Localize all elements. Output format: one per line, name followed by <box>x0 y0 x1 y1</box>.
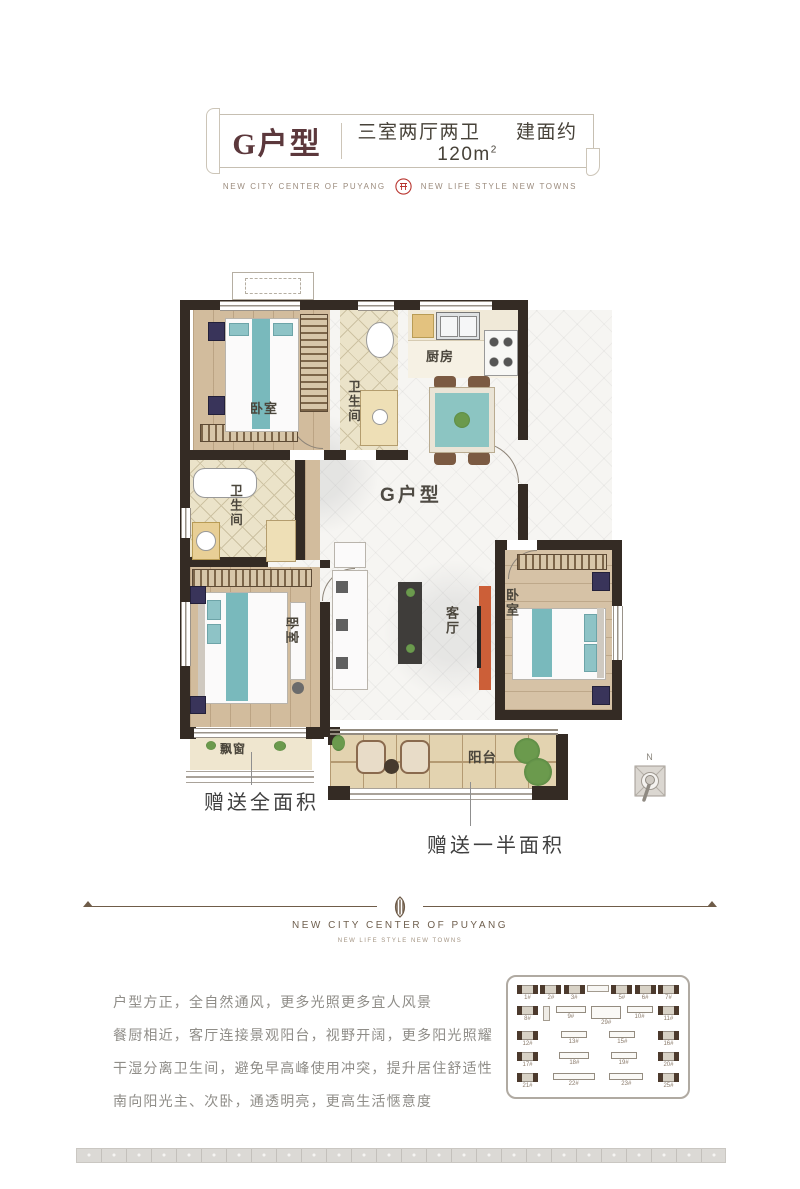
shower <box>360 390 398 446</box>
pillow <box>207 600 221 620</box>
wall <box>306 727 324 739</box>
floor-plan: 卧室 卫生间 厨房 卫生间 卧室 客厅 卧室 飘窗 阳台 G户型 <box>180 272 622 832</box>
door-gap <box>507 540 537 550</box>
building-footprint <box>611 1052 637 1059</box>
building: 25# <box>658 1073 679 1089</box>
building-footprint <box>517 1031 538 1040</box>
bed-runner <box>532 609 552 677</box>
site-plan-map: 1# 2# 3# 5# 6# 7# 8# 9# 29# 10# 11# 12# … <box>506 975 690 1099</box>
building-label: 16# <box>663 1041 673 1047</box>
building: 3# <box>564 985 585 1001</box>
ac-unit-outline <box>245 278 301 294</box>
cushion <box>336 581 348 593</box>
building-label: 17# <box>522 1062 532 1068</box>
dining-chair <box>468 452 490 465</box>
title-banner: G户型 三室两厅两卫 建面约120m2 <box>212 114 594 168</box>
unit-type-center-label: G户型 <box>380 480 442 507</box>
building: 20# <box>658 1052 679 1068</box>
bay-window-opening <box>194 728 306 738</box>
door-gap <box>290 450 324 460</box>
nightstand <box>190 696 206 714</box>
compass-icon <box>630 762 670 804</box>
building-footprint <box>658 1031 679 1040</box>
wall <box>518 484 528 542</box>
brand-line: NEW CITY CENTER OF PUYANG NEW LIFE STYLE… <box>0 178 800 195</box>
balcony-window-sill <box>350 788 532 800</box>
sink-basin <box>440 316 458 337</box>
balcony-plant <box>332 735 345 751</box>
sofa <box>332 570 368 690</box>
building-label: 29# <box>601 1020 611 1026</box>
balcony-slider-line <box>330 733 558 735</box>
building: 12# <box>517 1031 538 1047</box>
stool <box>292 682 304 694</box>
shelf-unit <box>398 582 422 664</box>
unit-name-title: G户型 <box>213 119 341 163</box>
compass-north-label: N <box>628 752 672 762</box>
building-label: 9# <box>567 1014 574 1020</box>
building-label: 25# <box>663 1083 673 1089</box>
gate-footprint <box>587 985 609 992</box>
kitchen-sink <box>436 312 480 340</box>
pillow <box>584 614 597 642</box>
building: 5# <box>611 985 632 1001</box>
unit-spec-text: 三室两厅两卫 建面约120m2 <box>342 117 593 166</box>
building-footprint <box>553 1073 595 1080</box>
room-label-kitchen: 厨房 <box>426 346 454 365</box>
section-divider: NEW CITY CENTER OF PUYANG NEW LIFE STYLE… <box>85 896 715 958</box>
building: 1# <box>517 985 538 1001</box>
pillow <box>207 624 221 644</box>
window <box>181 508 191 538</box>
divider-emblem-icon <box>387 896 413 918</box>
dining-chair <box>434 452 456 465</box>
divider-title: NEW CITY CENTER OF PUYANG <box>85 920 715 931</box>
building: 19# <box>611 1052 637 1066</box>
building-label: 22# <box>569 1081 579 1087</box>
building-label: 5# <box>618 995 625 1001</box>
table-plant <box>454 412 470 428</box>
shower <box>266 520 296 562</box>
building: 17# <box>517 1052 538 1068</box>
sink-basin <box>459 316 477 337</box>
building-label: 1# <box>524 995 531 1001</box>
building-label: 11# <box>664 1016 674 1022</box>
window <box>181 602 191 666</box>
building-footprint <box>591 1006 621 1019</box>
building: 9# <box>556 1006 586 1020</box>
headboard <box>198 592 205 702</box>
nightstand <box>190 586 206 604</box>
room-label-balcony: 阳台 <box>468 746 497 766</box>
building-label: 20# <box>663 1062 673 1068</box>
wall <box>320 602 330 737</box>
building: 18# <box>559 1052 589 1066</box>
description-line: 南向阳光主、次卧，通透明亮，更高生活惬意度 <box>113 1085 473 1118</box>
building-label: 7# <box>665 995 672 1001</box>
building-label: 23# <box>621 1081 631 1087</box>
room-label-bedroom-right: 卧室 <box>502 588 521 618</box>
wardrobe <box>517 554 607 570</box>
leader-line <box>470 782 471 826</box>
balcony-chair <box>356 740 386 774</box>
divider-line <box>91 906 377 907</box>
building-footprint <box>627 1006 653 1013</box>
wall <box>612 550 622 606</box>
description-line: 干湿分离卫生间，避免早高峰使用冲突，提升居住舒适性 <box>113 1052 473 1085</box>
room-label-bath-left: 卫生间 <box>226 484 245 528</box>
divider-end-triangle <box>707 901 717 907</box>
wall <box>320 560 330 568</box>
bottom-frieze-border <box>76 1148 726 1163</box>
site-plan-row: 21# 22# 23# 25# <box>517 1073 679 1089</box>
structure-footprint <box>543 1006 550 1021</box>
building-footprint <box>517 1006 538 1015</box>
building: 8# <box>517 1006 538 1022</box>
wall <box>495 710 622 720</box>
building-footprint <box>517 1073 538 1082</box>
cushion <box>336 619 348 631</box>
pillow <box>584 644 597 672</box>
building-footprint <box>556 1006 586 1013</box>
building: 10# <box>627 1006 653 1020</box>
armchair <box>334 542 366 568</box>
wall <box>518 310 528 440</box>
wall <box>495 550 505 710</box>
banner-scroll-curl-right <box>586 148 600 176</box>
site-plan-row: 8# 9# 29# 10# 11# <box>517 1006 679 1026</box>
divider-subtitle: NEW LIFE STYLE NEW TOWNS <box>85 938 715 944</box>
building: 7# <box>658 985 679 1001</box>
wall <box>295 460 305 560</box>
gift-full-area-label: 赠送全面积 <box>204 786 319 815</box>
corridor-floor <box>305 460 320 560</box>
bay-plant <box>206 741 216 750</box>
building-label: 18# <box>569 1060 579 1066</box>
building-footprint <box>540 985 561 994</box>
brand-seal-icon <box>395 178 412 195</box>
building-label: 8# <box>524 1016 531 1022</box>
pillow <box>229 323 249 336</box>
utility-structure <box>543 1006 550 1021</box>
wall <box>532 786 556 800</box>
pillow <box>273 323 293 336</box>
building: 6# <box>635 985 656 1001</box>
site-plan-row: 17# 18# 19# 20# <box>517 1052 679 1068</box>
shower-head <box>372 409 388 425</box>
building: 13# <box>561 1031 587 1045</box>
bay-window-sill <box>186 771 314 783</box>
site-plan-row: 12# 13# 15# 16# <box>517 1031 679 1047</box>
nightstand <box>208 396 225 415</box>
cutting-board <box>412 314 434 338</box>
vanity <box>192 522 220 560</box>
building-label: 10# <box>635 1014 645 1020</box>
nightstand <box>592 572 610 591</box>
stove <box>484 330 518 376</box>
room-label-master-bedroom: 卧室 <box>284 617 303 651</box>
nightstand <box>592 686 610 705</box>
room-label-bay-window: 飘窗 <box>220 740 246 757</box>
window <box>613 606 623 660</box>
ac-platform <box>232 272 314 300</box>
nightstand <box>208 322 225 341</box>
site-plan-row: 1# 2# 3# 5# 6# 7# <box>517 985 679 1001</box>
bay-plant <box>274 741 286 751</box>
window <box>358 301 394 311</box>
building-footprint <box>559 1052 589 1059</box>
building-footprint <box>611 985 632 994</box>
building-footprint <box>658 1073 679 1082</box>
banner-scroll-curl-left <box>206 108 220 174</box>
wardrobe <box>192 569 312 587</box>
building-footprint <box>658 1006 679 1015</box>
building: 21# <box>517 1073 538 1089</box>
wall <box>556 734 568 800</box>
building: 2# <box>540 985 561 1001</box>
building-label: 3# <box>571 995 578 1001</box>
headboard <box>597 608 604 678</box>
window <box>220 301 300 311</box>
shelf-plant <box>406 588 415 597</box>
gift-half-area-label: 赠送一半面积 <box>427 829 565 858</box>
building-footprint <box>564 985 585 994</box>
toilet <box>366 322 394 358</box>
floorplan-flyer-page: G户型 三室两厅两卫 建面约120m2 NEW CITY CENTER OF P… <box>0 0 800 1189</box>
wardrobe <box>300 314 328 412</box>
description-line: 户型方正，全自然通风，更多光照更多宜人风景 <box>113 986 473 1019</box>
building: 29# <box>591 1006 621 1026</box>
brand-right-text: NEW LIFE STYLE NEW TOWNS <box>421 182 577 191</box>
layout-spec: 三室两厅两卫 <box>357 122 480 143</box>
building-footprint <box>609 1073 643 1080</box>
cushion <box>336 657 348 669</box>
bathtub <box>193 468 257 498</box>
balcony-table <box>384 759 399 774</box>
building-label: 15# <box>617 1039 627 1045</box>
description-block: 户型方正，全自然通风，更多光照更多宜人风景 餐厨相近，客厅连接景观阳台，视野开阔… <box>113 986 473 1118</box>
balcony-chair <box>400 740 430 774</box>
shelf-plant <box>406 644 415 653</box>
wall <box>612 660 622 712</box>
building: 16# <box>658 1031 679 1047</box>
brand-left-text: NEW CITY CENTER OF PUYANG <box>223 182 386 191</box>
building-footprint <box>635 985 656 994</box>
building-footprint <box>561 1031 587 1038</box>
door-gap <box>346 450 376 460</box>
balcony-plant <box>524 758 552 786</box>
sink-basin <box>196 531 216 551</box>
leader-line <box>251 752 252 785</box>
building-label: 13# <box>569 1039 579 1045</box>
entrance-structure <box>587 985 609 992</box>
building-label: 2# <box>547 995 554 1001</box>
tv <box>477 606 481 668</box>
building-label: 19# <box>619 1060 629 1066</box>
building-footprint <box>658 1052 679 1061</box>
room-label-bedroom-top: 卧室 <box>250 398 278 417</box>
building-footprint <box>517 985 538 994</box>
building-label: 12# <box>522 1041 532 1047</box>
building-footprint <box>517 1052 538 1061</box>
building-label: 21# <box>522 1083 532 1089</box>
divider-line <box>423 906 709 907</box>
description-line: 餐厨相近，客厅连接景观阳台，视野开阔，更多阳光照耀 <box>113 1019 473 1052</box>
balcony-slider-line <box>330 729 558 731</box>
building: 22# <box>553 1073 595 1087</box>
dining-table <box>430 388 494 452</box>
wall <box>328 786 350 800</box>
area-superscript: 2 <box>491 144 498 155</box>
building: 11# <box>658 1006 679 1022</box>
building: 23# <box>609 1073 643 1087</box>
compass: N <box>628 752 672 809</box>
building-label: 6# <box>642 995 649 1001</box>
room-label-living-room: 客厅 <box>442 606 461 636</box>
building-footprint <box>658 985 679 994</box>
building-footprint <box>609 1031 635 1038</box>
building: 15# <box>609 1031 635 1045</box>
bed-runner <box>226 593 248 701</box>
room-label-bath-top: 卫生间 <box>344 380 363 424</box>
